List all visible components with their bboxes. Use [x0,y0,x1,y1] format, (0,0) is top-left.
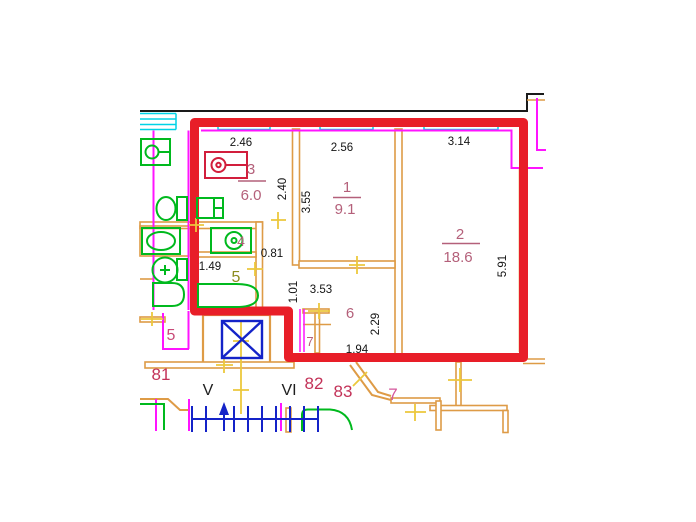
room-5-number: 5 [232,269,241,286]
dim-5-91: 5.91 [497,255,509,277]
section-v-label: V [203,382,214,399]
dim-2-56: 2.56 [331,142,353,154]
dim-0-81: 0.81 [261,248,283,260]
room-3-number: 3 [247,161,255,178]
stove-icon [205,152,247,178]
room-1-number: 1 [343,179,351,196]
unit-83-label: 83 [334,382,353,401]
dim-3-53: 3.53 [310,284,332,296]
dim-2-29: 2.29 [370,313,382,335]
sink-icon [141,139,170,165]
elevator-icon [222,321,262,358]
unit-7-label: 7 [388,385,397,404]
bathtub-icon [198,284,258,307]
section-vi-label: VI [281,382,296,399]
room-2-area: 18.6 [443,249,472,266]
washing-machine-icon [211,228,251,253]
kitchen-sink-icon [197,198,223,218]
dim-1-01: 1.01 [288,281,300,303]
dim-3-14: 3.14 [448,136,471,148]
building-outline [140,94,545,111]
room-7-number: 7 [306,334,313,349]
unit-81-label: 81 [152,365,171,384]
unit-5-label: 5 [167,327,176,344]
room-2-number: 2 [456,226,464,243]
dim-2-46: 2.46 [230,137,252,149]
dim-2-40: 2.40 [277,178,289,200]
stairs-icon [192,402,318,432]
toilet-icon [157,197,188,220]
dimension-labels: 2.46 2.56 3.14 2.40 3.55 0.81 1.49 1.01 … [199,136,509,356]
room-6-number: 6 [346,305,354,322]
room-4-number: 4 [237,233,245,249]
bathtub-small-icon [153,283,184,306]
washbasin-icon [142,228,180,254]
room-1-area: 9.1 [335,201,356,218]
dim-1-94: 1.94 [346,344,369,356]
dim-3-55: 3.55 [301,191,313,213]
room-3-area: 6.0 [241,187,262,204]
toilet-round-icon [153,258,188,283]
floor-plan-drawing: 2.46 2.56 3.14 2.40 3.55 0.81 1.49 1.01 … [0,0,696,522]
floor-plan-canvas: 2.46 2.56 3.14 2.40 3.55 0.81 1.49 1.01 … [0,0,696,522]
dim-1-49: 1.49 [199,261,221,273]
unit-82-label: 82 [305,374,324,393]
